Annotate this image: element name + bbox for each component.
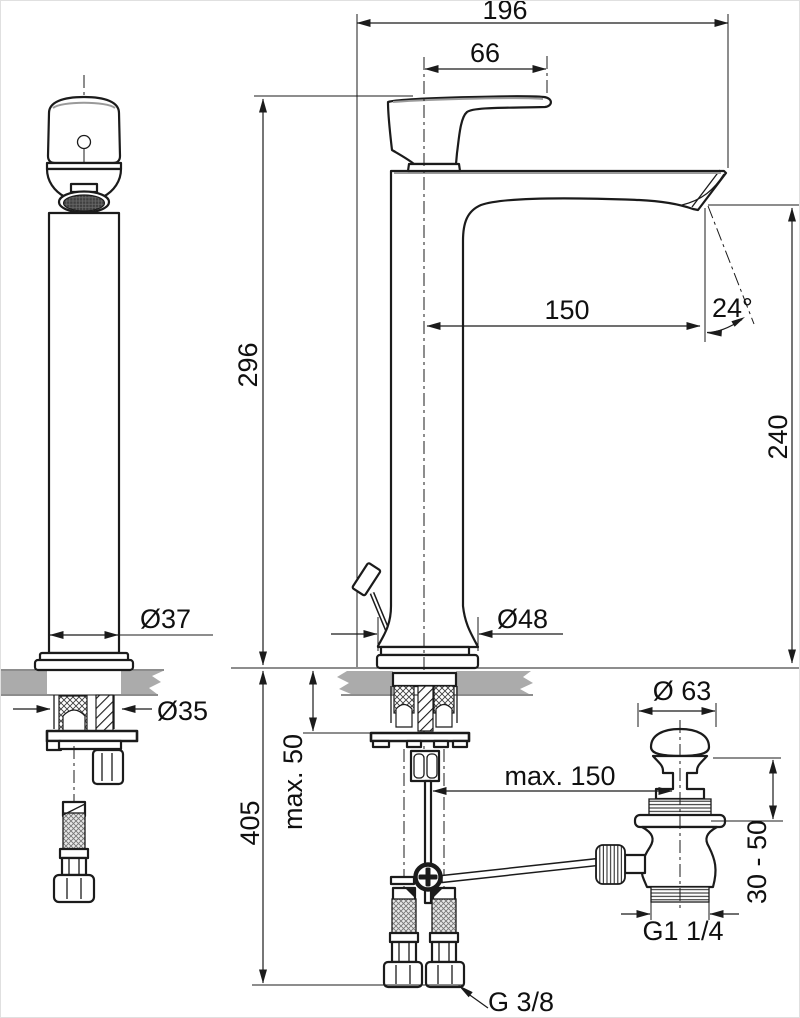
hose-nut-left	[384, 962, 422, 987]
front-view	[35, 75, 137, 902]
supply-hose-left	[384, 888, 422, 987]
dim-label-240: 240	[763, 414, 793, 459]
drain-knurled-knob	[596, 845, 625, 884]
hose-nut-right	[426, 962, 464, 987]
dim-overall-depth-196: 196	[357, 1, 728, 25]
dim-spout-reach-150: 150	[427, 208, 705, 342]
dim-label-24: 24°	[712, 293, 753, 323]
dim-spray-angle-24: 24°	[707, 206, 754, 337]
dim-label-max50: max. 50	[278, 734, 308, 830]
front-handle	[47, 97, 121, 169]
side-flange-upper	[381, 647, 469, 655]
dim-label-48: Ø48	[497, 604, 548, 634]
front-flange-lower	[35, 660, 133, 670]
front-hose-braid	[63, 813, 85, 849]
dim-height-296: 296	[233, 96, 413, 665]
supply-hose-right	[426, 888, 464, 987]
side-bracket	[371, 733, 469, 741]
dim-spout-to-deck-240: 240	[708, 205, 799, 663]
dim-label-296: 296	[233, 342, 263, 387]
front-mounting	[47, 695, 137, 801]
dim-label-150: 150	[544, 295, 589, 325]
linkage-rod	[442, 859, 598, 883]
side-flange-lower	[377, 655, 478, 668]
front-body	[49, 213, 119, 653]
drain-valve	[596, 720, 725, 909]
front-supply-hose	[54, 802, 94, 902]
technical-drawing-page: 196 66 296 150 24° 240	[0, 0, 800, 1018]
dim-label-196: 196	[482, 1, 527, 25]
drain-body	[642, 827, 717, 887]
ball-joint	[416, 865, 441, 890]
side-body-spout	[378, 171, 726, 647]
side-threaded-rod	[418, 686, 433, 731]
dim-label-g114: G1 1/4	[642, 916, 723, 946]
front-mounting-nut	[93, 750, 123, 784]
dim-label-max150: max. 150	[504, 761, 615, 791]
aerator-icon	[64, 195, 105, 211]
side-handle	[388, 96, 551, 171]
front-hose-nut	[54, 875, 94, 902]
side-view	[352, 14, 728, 987]
dim-label-66: 66	[470, 38, 500, 68]
dim-drain-thread-g114: G1 1/4	[621, 902, 739, 946]
dim-label-37: Ø37	[140, 604, 191, 634]
dim-supply-thread-g38: G 3/8	[458, 985, 554, 1017]
dim-rod-max-150: max. 150	[433, 761, 672, 791]
dim-label-63: Ø 63	[653, 676, 712, 706]
dim-label-3050: 30 - 50	[742, 820, 772, 904]
dim-drain-cap-63: Ø 63	[638, 676, 716, 727]
dim-label-g38: G 3/8	[488, 987, 554, 1017]
front-bracket	[47, 731, 137, 741]
front-threaded-rod	[96, 695, 113, 732]
dim-label-35: Ø35	[157, 696, 208, 726]
front-spout-collar	[47, 169, 121, 213]
dim-drain-range-30-50: 30 - 50	[711, 758, 783, 904]
dim-label-405: 405	[235, 800, 265, 845]
technical-drawing-canvas: 196 66 296 150 24° 240	[1, 1, 800, 1018]
pullrod-knob	[352, 563, 381, 596]
dim-handle-offset-66: 66	[425, 38, 547, 97]
